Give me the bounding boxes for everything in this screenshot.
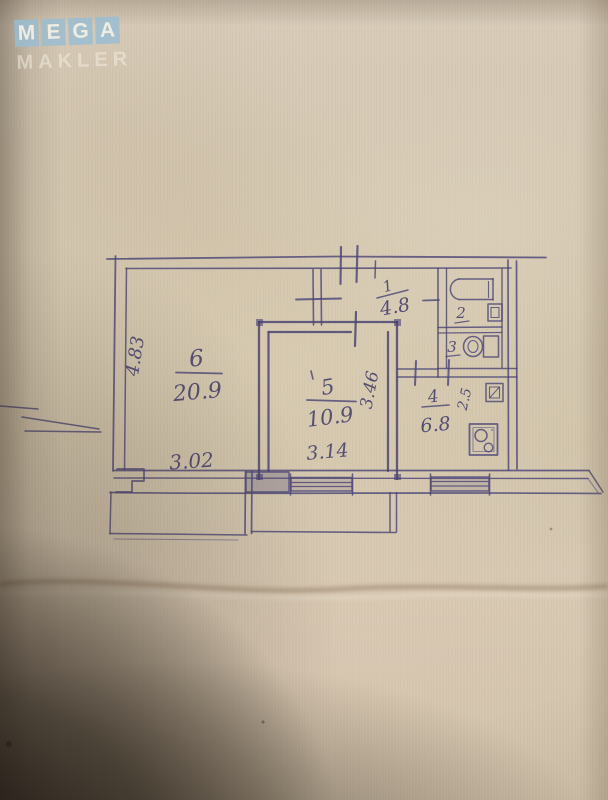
hall-kitchen-door-tick: [415, 361, 416, 385]
wc-number-label: 3: [447, 338, 457, 356]
dim-3-14-label: 3.14: [305, 439, 349, 465]
watermark-tile-g: G: [68, 17, 93, 45]
watermark-tile-e: E: [41, 18, 66, 46]
bathroom-door-tick: [423, 300, 439, 301]
paper-specks: [6, 528, 552, 747]
dim-3-46-label: 3.46: [357, 369, 384, 410]
watermark-tiles: M E G A: [14, 16, 131, 47]
bathtub-icon: [450, 279, 493, 301]
hall-number-label: 1: [381, 276, 395, 296]
paper-crease: [0, 581, 608, 597]
room5-area-label: 10.9: [305, 402, 354, 432]
hall-area-label: 4.8: [377, 294, 412, 321]
kitchen-area-label: 6.8: [419, 413, 451, 438]
toilet-icon: [464, 336, 499, 357]
entrance-door-ticks: [341, 246, 376, 284]
room6-door-tick: [296, 299, 341, 300]
bath-number-label: 2: [455, 304, 466, 322]
plan-labels: 6 20.9 4.83 3.02 5 10.9 3.14 3.46 1 4.8 …: [122, 276, 476, 474]
window-hatch-room5: [291, 474, 353, 495]
kitchen-door-tick: [448, 360, 449, 385]
hall-partition: [296, 270, 341, 326]
neighbour-wall-lines: [0, 406, 101, 432]
room6-area-label: 20.9: [171, 378, 223, 407]
balcony-door-pier: [246, 472, 289, 492]
window-hatch-kitchen: [431, 474, 490, 495]
room6-number-label: 6: [188, 345, 205, 372]
watermark-subtitle: MAKLER: [15, 48, 132, 75]
kitchen-number-label: 4: [426, 386, 440, 407]
room5-number-label: 5: [319, 374, 336, 400]
watermark-tile-m: M: [14, 19, 39, 47]
floor-plan-drawing: 6 20.9 4.83 3.02 5 10.9 3.14 3.46 1 4.8 …: [0, 0, 608, 800]
room5-door-tick: [355, 312, 356, 346]
dim-3-02-label: 3.02: [168, 447, 214, 474]
sink-icon: [488, 304, 502, 321]
bathroom-block: [397, 269, 517, 386]
plan-linework: [0, 246, 603, 540]
watermark-tile-a: A: [95, 16, 120, 44]
vent-icon: [486, 384, 503, 402]
watermark: M E G A MAKLER: [14, 16, 132, 75]
stove-icon: [470, 424, 498, 455]
floor-plan-photo: 6 20.9 4.83 3.02 5 10.9 3.14 3.46 1 4.8 …: [0, 0, 608, 800]
dim-2-5-label: 2.5: [455, 386, 476, 412]
balcony-outline: [110, 472, 397, 541]
